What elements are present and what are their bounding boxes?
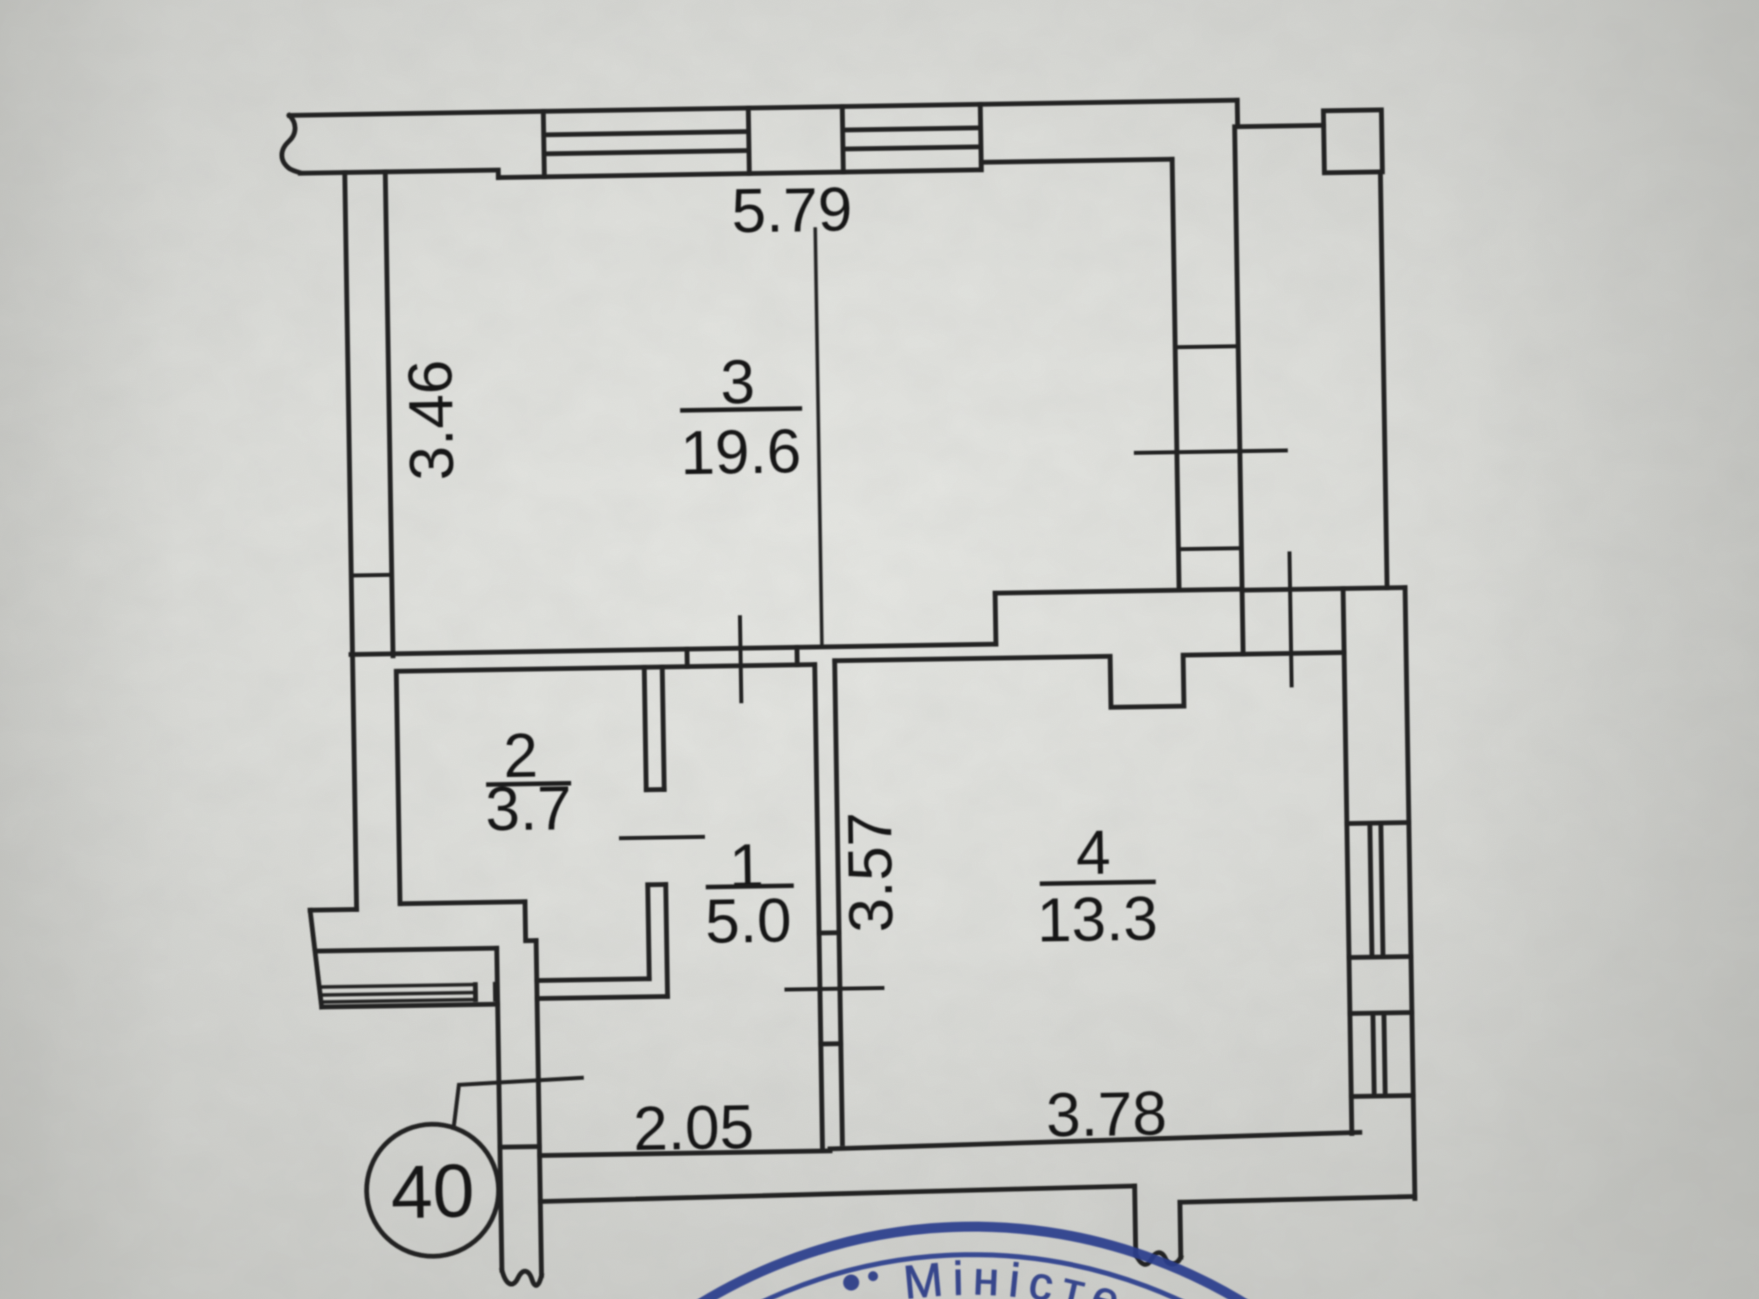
svg-text:3.7: 3.7 xyxy=(485,774,572,844)
svg-text:3.57: 3.57 xyxy=(836,811,907,933)
svg-text:13.3: 13.3 xyxy=(1036,885,1158,956)
svg-text:5.79: 5.79 xyxy=(731,175,853,246)
svg-text:3.78: 3.78 xyxy=(1046,1079,1168,1150)
svg-text:4: 4 xyxy=(1075,818,1111,888)
svg-text:3.46: 3.46 xyxy=(396,359,467,481)
svg-text:19.6: 19.6 xyxy=(680,417,802,488)
svg-text:2.05: 2.05 xyxy=(633,1093,755,1164)
svg-text:5.0: 5.0 xyxy=(705,886,792,956)
svg-text:40: 40 xyxy=(390,1149,475,1234)
